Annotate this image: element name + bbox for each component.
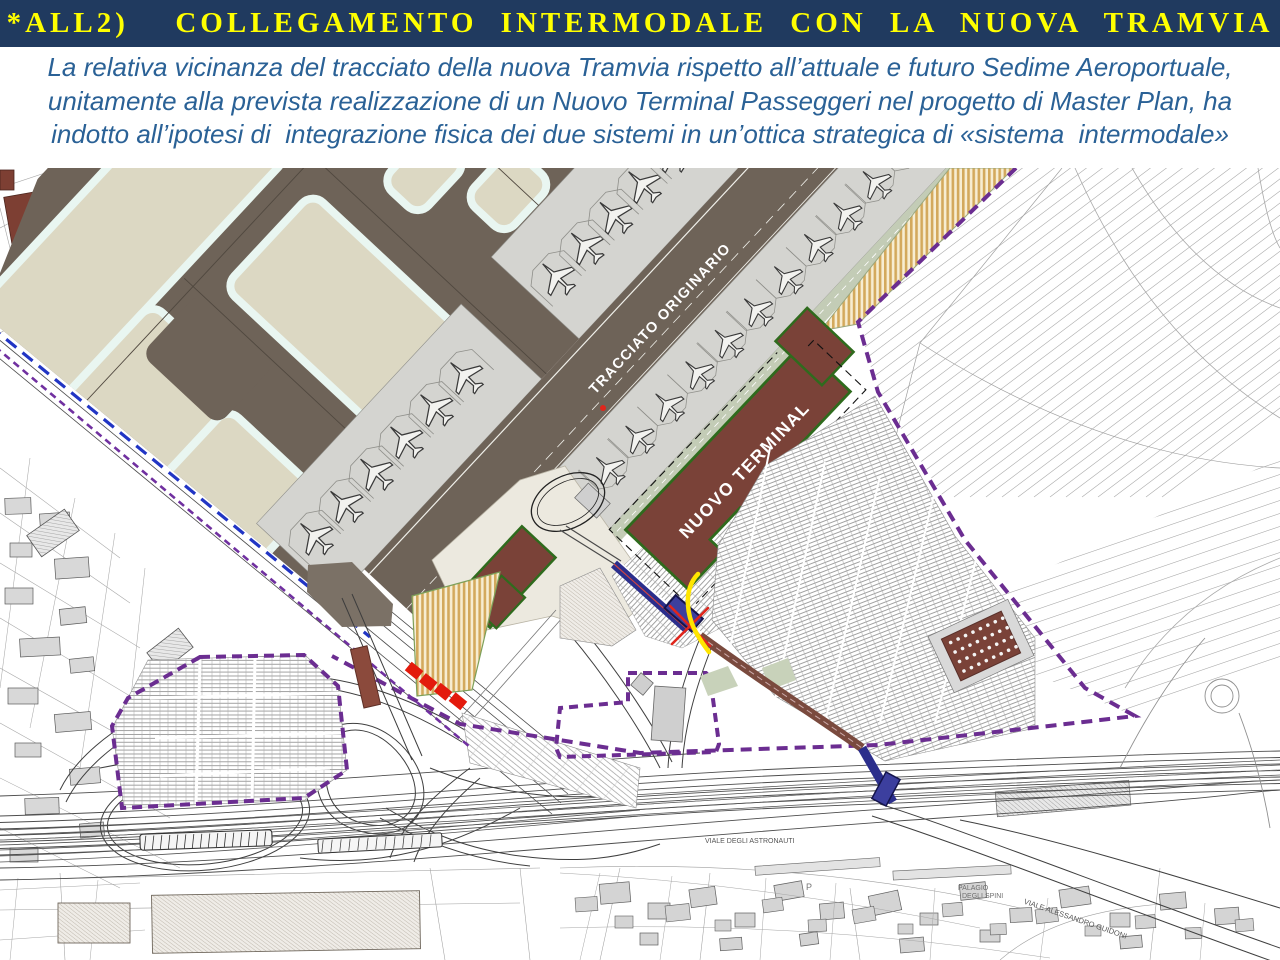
svg-text:VIALE DEGLI ASTRONAUTI: VIALE DEGLI ASTRONAUTI: [705, 838, 795, 845]
svg-text:P: P: [806, 882, 812, 892]
svg-text:PALAGIO: PALAGIO: [958, 885, 989, 892]
svg-text:DEGLI SPINI: DEGLI SPINI: [962, 893, 1003, 900]
